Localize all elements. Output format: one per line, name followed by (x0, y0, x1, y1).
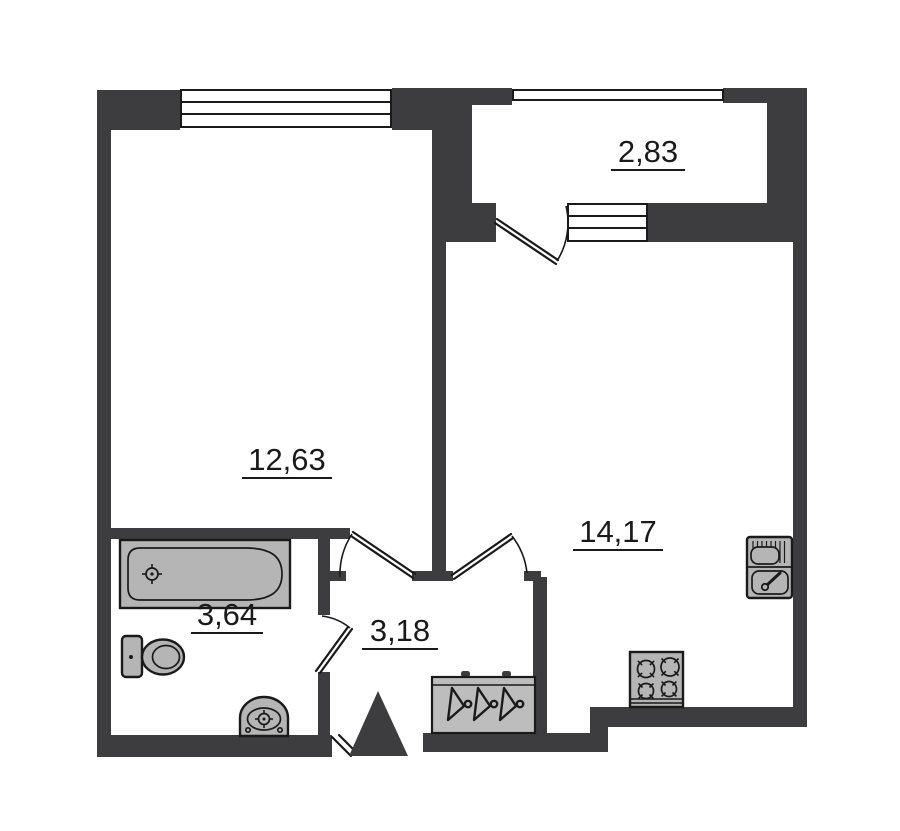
wardrobe-icon (432, 671, 535, 733)
wall-bottom-left (97, 735, 332, 757)
door-bathroom (316, 616, 352, 673)
floor-plan: 12,63 2,83 14,17 3,64 3,18 (0, 0, 900, 831)
toilet-icon (122, 636, 184, 677)
hallway-area-label: 3,18 (370, 613, 430, 648)
wall-bottom-hall (423, 733, 608, 752)
balcony-area-label: 2,83 (618, 134, 678, 169)
window-balcony-glazing (513, 90, 723, 100)
wall-bottom-kitchen (590, 707, 807, 727)
door-balcony (495, 206, 568, 264)
kitchen-sink-icon (747, 537, 792, 598)
wall-left (97, 128, 111, 757)
washbasin-icon (240, 697, 288, 736)
wall-bathroom-right-lower (318, 672, 330, 737)
door-kitchen (452, 534, 527, 579)
bathroom-area-label: 3,64 (197, 597, 257, 632)
wall-divider-thin (432, 242, 446, 572)
wall-top-mid (392, 88, 472, 130)
wall-bottom-connector (590, 707, 608, 752)
wall-right (793, 103, 807, 727)
window-balcony-kitchen (568, 204, 647, 241)
walls (97, 88, 807, 757)
entrance-triangle-icon (349, 691, 408, 756)
wall-balcony-left-top (472, 88, 512, 105)
wall-top-left (97, 90, 180, 130)
wall-balcony-pillar (472, 203, 496, 242)
wall-balcony-right (767, 103, 793, 203)
kitchen-area-label: 14,17 (579, 514, 657, 549)
wall-bathroom-stub (330, 571, 346, 581)
wall-top-right (723, 88, 807, 103)
door-living-room (340, 532, 415, 578)
floor-plan-svg: 12,63 2,83 14,17 3,64 3,18 (0, 0, 900, 831)
wall-hall-center-stub (412, 571, 453, 581)
window-living-room (181, 90, 391, 127)
wall-balcony-bottom (647, 203, 793, 242)
stove-icon (630, 652, 683, 707)
wall-bathroom-top (97, 528, 350, 539)
wall-divider-upper (432, 130, 472, 242)
living-room-area-label: 12,63 (248, 442, 326, 477)
wall-bathroom-right-upper (318, 539, 330, 615)
